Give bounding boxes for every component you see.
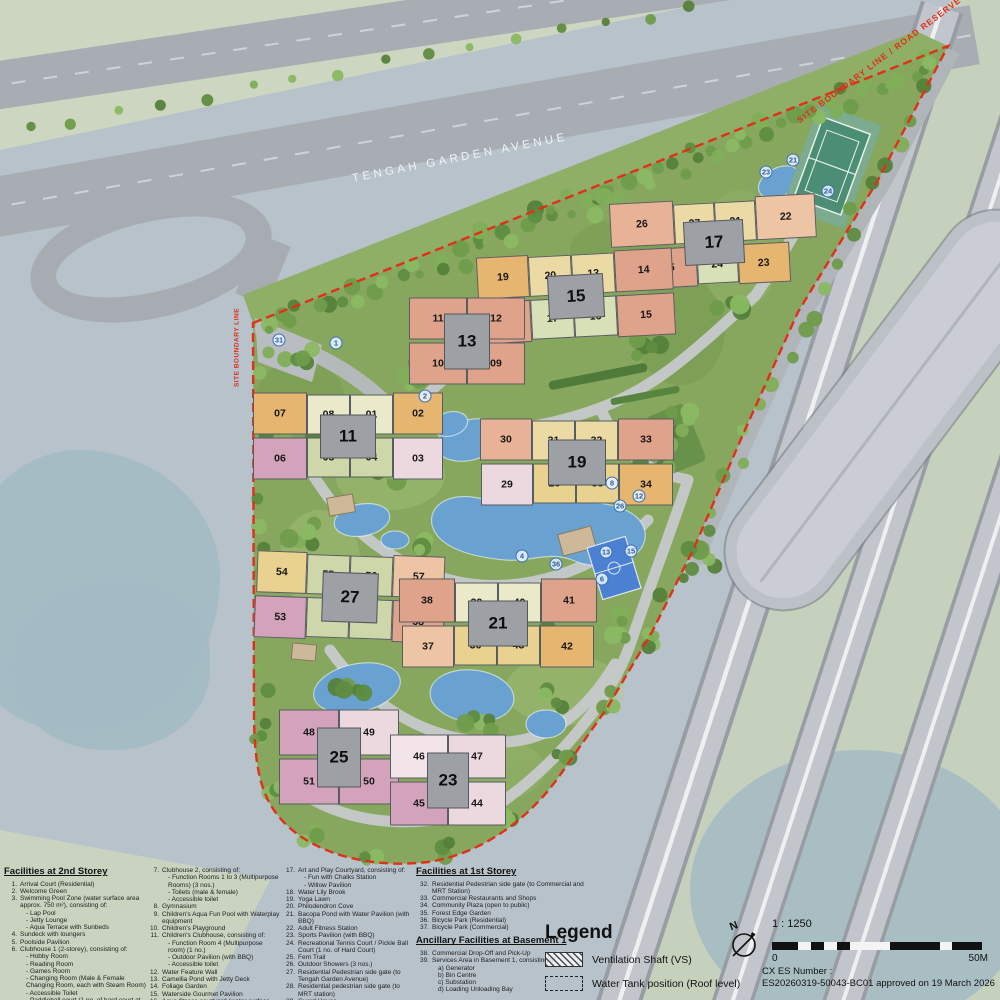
facility-item: 10.Children's Playground (146, 925, 281, 932)
cluster-core: 23 (427, 752, 469, 808)
facility-item: 9.Children's Aqua Fun Pool with Waterpla… (146, 911, 281, 926)
facilities-section-title: Facilities at 1st Storey (416, 867, 584, 878)
building-block: 54 (256, 550, 307, 594)
building-block: 37 (402, 626, 454, 668)
facility-item: 2.Welcome Green (4, 888, 147, 895)
facility-subitem: - Hobby Room (4, 953, 147, 960)
facility-subitem: - Fun with Chalks Station (282, 874, 415, 881)
facility-subitem: - Accessible toilet (146, 961, 281, 968)
scale: 1 : 1250 0 50M (772, 918, 988, 964)
facility-item: 14.Foliage Garden (146, 983, 281, 990)
north-letter: N (728, 919, 740, 933)
facility-subitem: - Reading Room (4, 961, 147, 968)
building-block: 06 (253, 438, 307, 480)
facility-subitem: - Function Rooms 1 to 3 (Multipurpose Ro… (146, 874, 281, 889)
cluster-core: 17 (683, 218, 745, 265)
facility-item: 28.Residential pedestrian side gate (to … (282, 983, 415, 998)
facility-marker-21: 21 (787, 154, 800, 167)
cluster-core: 11 (320, 414, 376, 458)
facility-item: 11.Children's Clubhouse, consisting of: (146, 932, 281, 939)
facility-item: 12.Water Feature Wall (146, 969, 281, 976)
building-cluster-25: 4849515025 (279, 710, 399, 805)
legend: Legend Ventilation Shaft (VS) Water Tank… (545, 922, 740, 1000)
facility-subitem: - Changing Room (Male & Female Changing … (4, 975, 147, 990)
facilities-column: 7.Clubhouse 2, consisting of:- Function … (146, 867, 281, 1000)
building-cluster-23: 4647454423 (390, 735, 506, 826)
facility-subitem: - Accessible toilet (146, 896, 281, 903)
building-block: 26 (609, 201, 675, 248)
building-block: 03 (393, 438, 443, 480)
facility-item: 13.Camellia Pond with Jetty Deck (146, 976, 281, 983)
scale-ratio: 1 : 1250 (772, 918, 988, 930)
facility-subitem: - Lap Pool (4, 910, 147, 917)
building-block: 30 (480, 419, 532, 461)
scale-max: 50M (969, 953, 988, 964)
cluster-core: 27 (321, 571, 379, 623)
facility-item: 18.Water Lily Brook (282, 889, 415, 896)
facility-item: 34.Community Plaza (open to public) (416, 902, 584, 909)
facility-item: 5.Poolside Pavilion (4, 939, 147, 946)
building-block: 53 (254, 595, 307, 639)
facility-subitem: - Jetty Lounge (4, 917, 147, 924)
building-cluster-13: 1112100913 (409, 298, 525, 385)
dashed-swatch (545, 976, 583, 991)
building-block: 34 (619, 464, 673, 506)
facility-item: 33.Commercial Restaurants and Shops (416, 895, 584, 902)
facilities-column: 17.Art and Play Courtyard, consisting of… (282, 867, 415, 1000)
building-block: 14 (614, 247, 674, 292)
facility-subitem: - Toilets (male & female) (146, 889, 281, 896)
facility-item: 3.Swimming Pool Zone (water surface area… (4, 895, 147, 910)
facility-marker-1: 1 (330, 337, 343, 350)
facility-subitem: - Outdoor Pavilion (with BBQ) (146, 954, 281, 961)
facility-item: 19.Yoga Lawn (282, 896, 415, 903)
building-block: 38 (399, 579, 455, 623)
facility-subitem: - Willow Pavilion (282, 882, 415, 889)
facility-item: 35.Forest Edge Garden (416, 910, 584, 917)
facility-item: 7.Clubhouse 2, consisting of: (146, 867, 281, 874)
entrance-plaza (255, 318, 322, 382)
facility-marker-36: 36 (550, 558, 563, 571)
facility-subitem: - Aqua Terrace with Sunbeds (4, 924, 147, 931)
facility-item: 26.Outdoor Showers (3 nos.) (282, 961, 415, 968)
scale-zero: 0 (772, 953, 778, 964)
facility-item: 27.Residential Pedestrian side gate (to … (282, 969, 415, 984)
facility-item: 20.Philodendron Cove (282, 903, 415, 910)
building-block: 02 (393, 393, 443, 435)
cluster-core: 13 (444, 313, 490, 369)
facility-marker-15: 15 (625, 545, 638, 558)
legend-item-ventilation-shaft: Ventilation Shaft (VS) (545, 952, 740, 967)
facility-marker-13: 13 (600, 546, 613, 559)
facility-subitem: - Accessible Toilet (4, 990, 147, 997)
facility-item: 8.Gymnasium (146, 903, 281, 910)
building-block: 42 (540, 626, 594, 668)
building-block: 22 (755, 193, 817, 240)
building-block: 41 (541, 579, 597, 623)
approval-note: CX ES Number : ES20260319-50043-BC01 app… (762, 966, 995, 991)
cluster-core: 21 (468, 600, 528, 646)
facility-item: 1.Arrival Court (Residential) (4, 881, 147, 888)
facility-item: 6.Clubhouse 1 (2-storey), consisting of: (4, 946, 147, 953)
building-block: 19 (476, 255, 530, 300)
facility-item: 15.Waterside Gourmet Pavilion (146, 991, 281, 998)
building-block: 07 (253, 393, 307, 435)
facility-marker-2: 2 (419, 390, 432, 403)
legend-title: Legend (545, 922, 740, 944)
facility-marker-8: 8 (606, 477, 619, 490)
building-block: 23 (737, 242, 791, 285)
facilities-section-title: Facilities at 2nd Storey (4, 867, 147, 878)
hatch-swatch (545, 952, 583, 967)
legend-item-water-tank: Water Tank position (Roof level) (545, 976, 740, 991)
facility-item: 22.Adult Fitness Station (282, 925, 415, 932)
facility-subitem: - Function Room 4 (Multipurpose room) (1… (146, 940, 281, 955)
facility-item: 21.Bacopa Pond with Water Pavilion (with… (282, 911, 415, 926)
cluster-core: 25 (317, 727, 361, 787)
north-arrow: N (722, 918, 766, 969)
facility-item: 25.Fern Trail (282, 954, 415, 961)
facility-marker-24: 24 (822, 185, 835, 198)
cluster-core: 19 (548, 439, 606, 485)
building-block: 29 (481, 464, 533, 506)
cx-es-number-value: ES20260319-50043-BC01 approved on 19 Mar… (762, 978, 995, 990)
facilities-column: Facilities at 2nd Storey1.Arrival Court … (4, 867, 147, 1000)
facility-marker-4: 4 (516, 550, 529, 563)
facility-marker-26: 26 (614, 500, 627, 513)
pond-west-2 (10, 580, 210, 750)
cx-es-number-label: CX ES Number : (762, 966, 995, 978)
facility-marker-12: 12 (633, 490, 646, 503)
building-block: 15 (616, 292, 676, 337)
cluster-core: 15 (547, 273, 605, 320)
facility-item: 4.Sundeck with loungers (4, 931, 147, 938)
scale-bar (772, 942, 982, 950)
facility-marker-31: 31 (273, 334, 286, 347)
facility-subitem: - Games Room (4, 968, 147, 975)
facility-item: 23.Sports Pavilion (with BBQ) (282, 932, 415, 939)
facility-marker-6: 6 (596, 573, 609, 586)
facility-item: 24.Recreational Tennis Court / Pickle Ba… (282, 940, 415, 955)
facility-marker-23: 23 (760, 166, 773, 179)
boundary-label-left: SITE BOUNDARY LINE (234, 307, 241, 389)
building-block: 33 (618, 419, 674, 461)
building-cluster-21: 383940413736434221 (399, 579, 597, 668)
facility-item: 17.Art and Play Courtyard, consisting of… (282, 867, 415, 874)
facility-item: 32.Residential Pedestrian side gate (to … (416, 881, 584, 896)
building-cluster-11: 070801020605040311 (253, 393, 443, 480)
site-plan: 2627212225242317192013141817161515111210… (0, 0, 1000, 1000)
